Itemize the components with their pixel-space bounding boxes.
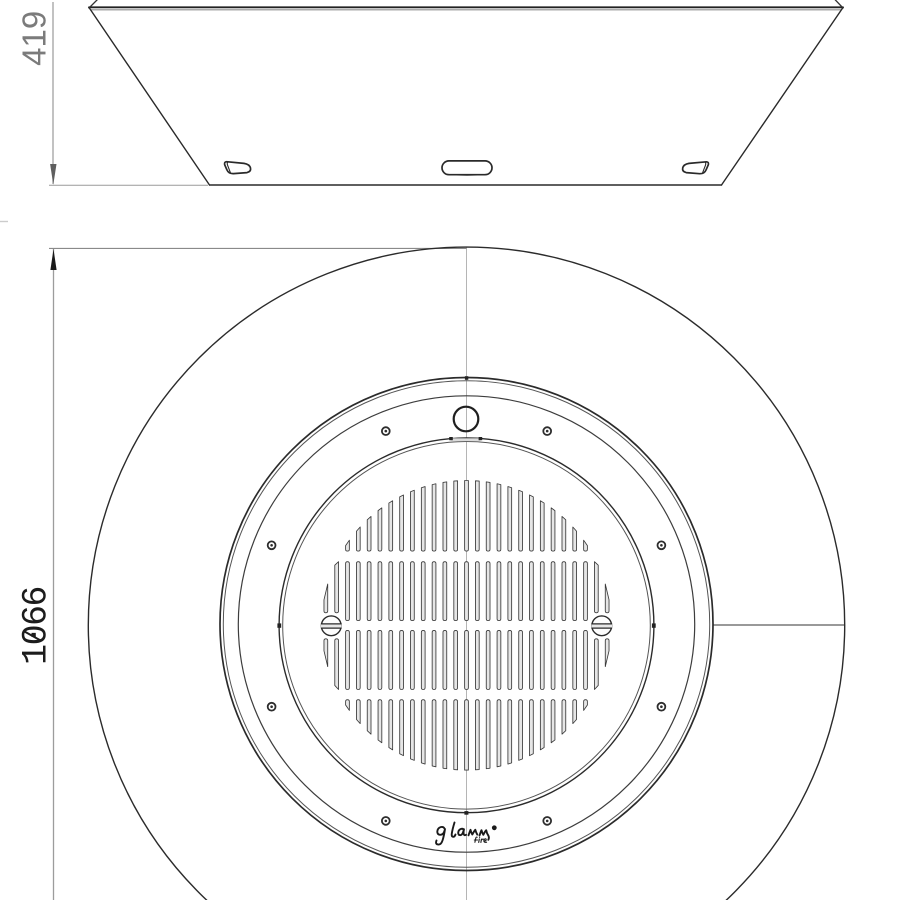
- svg-text:419: 419: [15, 11, 52, 66]
- svg-text:1066: 1066: [16, 587, 56, 665]
